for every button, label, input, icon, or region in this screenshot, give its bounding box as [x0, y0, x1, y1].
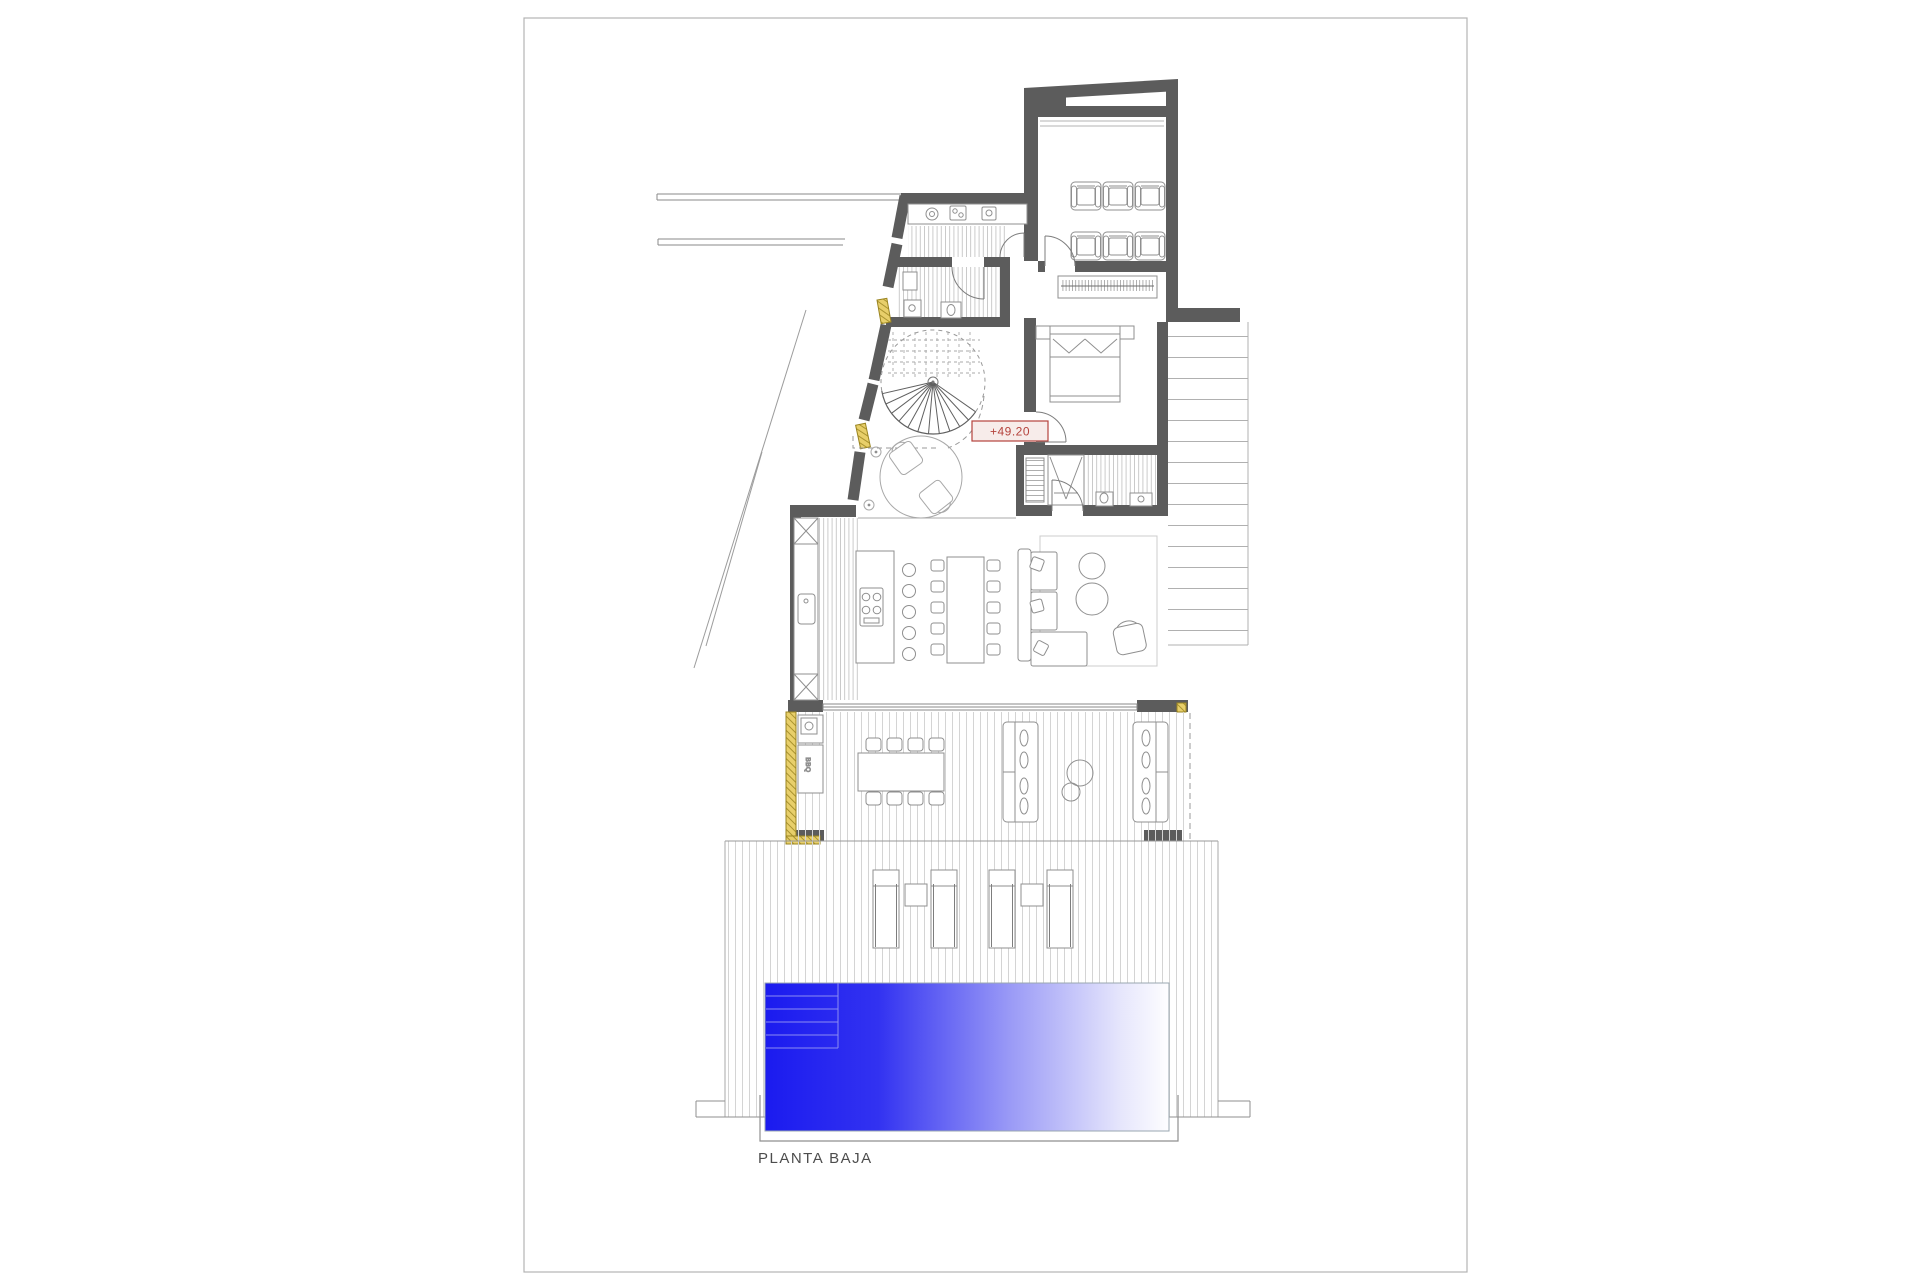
bbq-label: BBQ: [804, 757, 811, 772]
bbq-counter: BBQ: [798, 715, 823, 793]
window-marker: [1177, 703, 1186, 712]
kitchen-floor: [818, 518, 858, 700]
wall-cinema-south: [1075, 261, 1168, 272]
floor-plan-drawing: +49.20: [0, 0, 1920, 1280]
wall-bath-west: [1016, 455, 1024, 505]
wall-east-stub: [1168, 308, 1240, 322]
wall-bedroom-east: [1157, 322, 1168, 516]
wall-wc-east: [1000, 257, 1010, 327]
bed-headboard: [1050, 326, 1120, 334]
side-table: [905, 884, 927, 906]
bed: [1050, 334, 1120, 402]
glass-wall-south: [823, 704, 1137, 710]
wall-bath-south: [1083, 505, 1168, 516]
level-marker: +49.20: [972, 421, 1048, 441]
kitchen-sink-3: [798, 594, 815, 624]
nightstand: [1120, 326, 1134, 339]
wc-cabinet: [903, 272, 917, 290]
wall-inner-north: [1066, 106, 1168, 117]
side-table: [1021, 884, 1043, 906]
wall-bedroom-west: [1024, 318, 1036, 412]
toilet: [1096, 492, 1113, 506]
bath-sink: [1130, 493, 1152, 506]
kitchen-north: [908, 204, 1027, 224]
pool: [765, 983, 1169, 1131]
nightstand: [1036, 326, 1050, 339]
wardrobe: [1058, 276, 1157, 298]
floor-plan-page: +49.20: [0, 0, 1920, 1280]
kitchen-island: [856, 551, 894, 663]
terrace: BBQ: [796, 712, 1190, 843]
terrain-steps-east: [1168, 322, 1248, 645]
window-marker-terrace: [786, 712, 796, 843]
level-marker-text: +49.20: [990, 425, 1030, 439]
kitchen-wall-units: [794, 518, 818, 700]
outdoor-table: [858, 753, 944, 791]
wall-kitchen-north: [901, 193, 1028, 204]
wall-cinema-east: [1166, 84, 1178, 322]
outdoor-dining: [858, 738, 944, 805]
kitchen-top-floor: [908, 226, 1005, 257]
linen-closet: [1026, 458, 1044, 502]
dining-table: [947, 557, 984, 663]
wall-cinema-west: [1024, 88, 1038, 261]
plan-title: PLANTA BAJA: [758, 1150, 873, 1167]
wc-sink: [904, 300, 921, 317]
terrace-deck: [796, 712, 1188, 841]
sofa-back: [1018, 549, 1031, 661]
wall-bath-north: [1016, 445, 1157, 455]
